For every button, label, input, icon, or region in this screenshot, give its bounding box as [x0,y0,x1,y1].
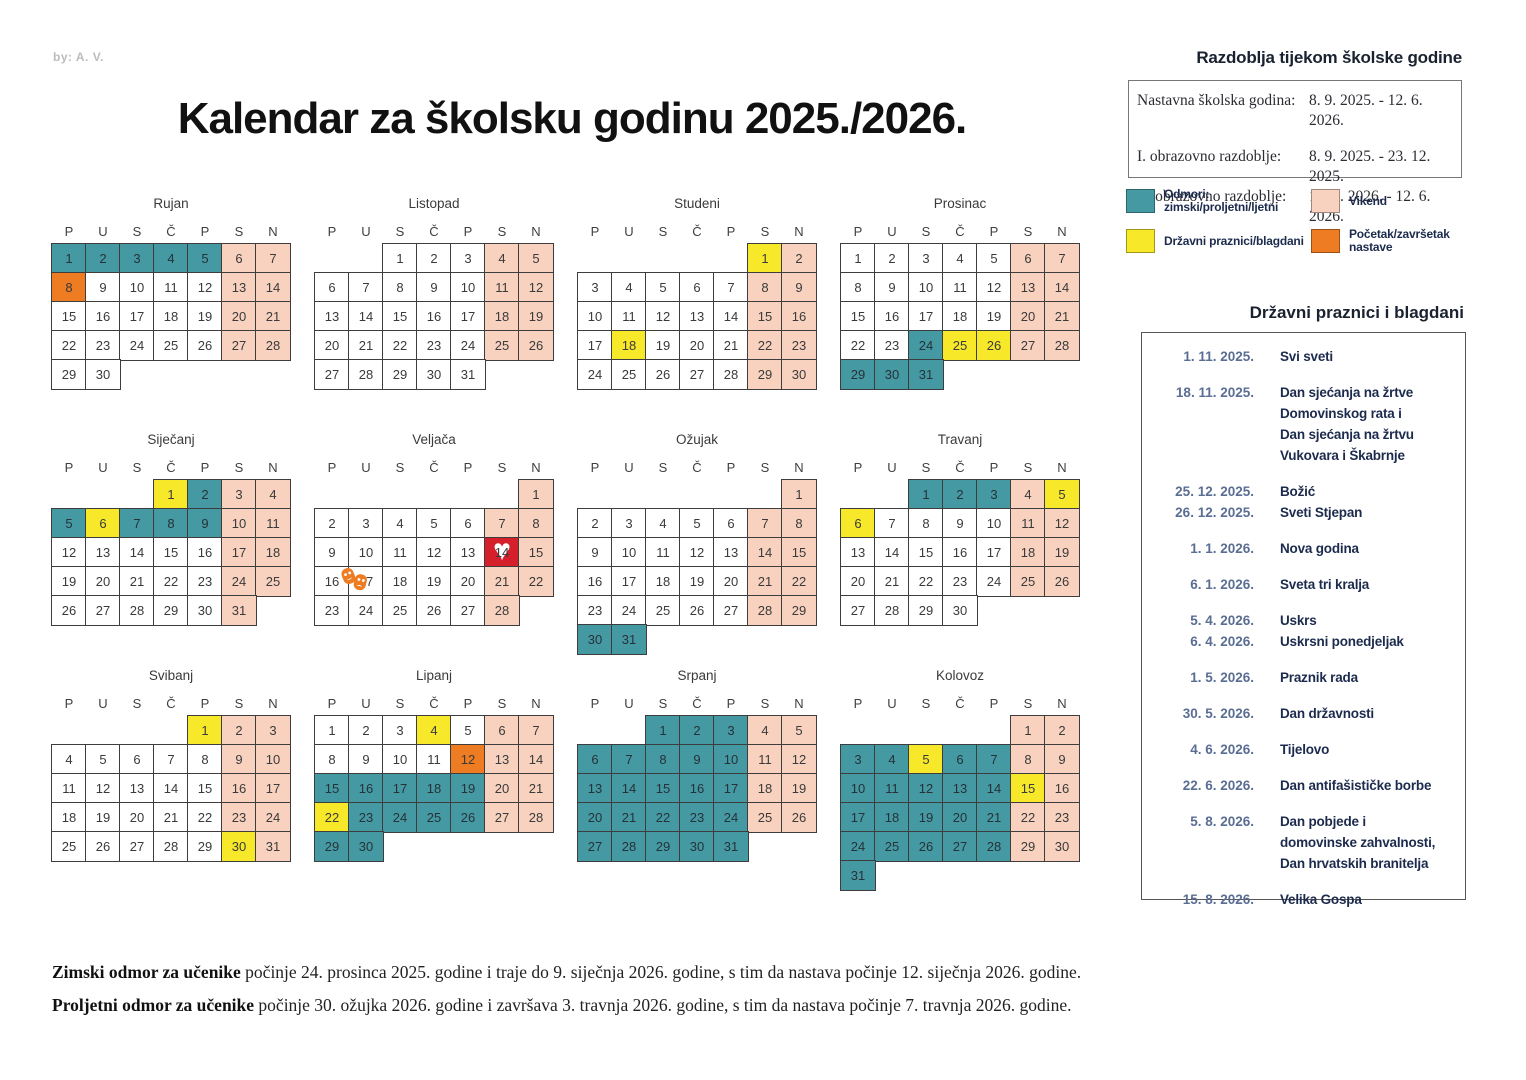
day-cell: 14 [256,273,290,302]
day-cell: 28 [748,596,782,625]
day-cell: 28 [349,360,383,389]
month-title: Veljača [315,432,553,454]
day-cell: 23 [417,331,451,360]
day-cell: 13 [578,774,612,803]
dow-label: U [349,454,383,480]
month-title: Listopad [315,196,553,218]
day-cell: 20 [451,567,485,596]
day-cell: 14 [875,538,909,567]
day-cell: 6 [120,745,154,774]
month-title: Kolovoz [841,668,1079,690]
day-cell: 29 [315,832,349,861]
day-cell: 5 [417,509,451,538]
day-cell: 19 [680,567,714,596]
day-cell: 4 [748,716,782,745]
month-title: Rujan [52,196,290,218]
dow-label: Č [943,454,977,480]
day-cell: 19 [52,567,86,596]
day-cell: 1 [841,244,875,273]
day-cell: 1 [315,716,349,745]
day-cell: 25 [417,803,451,832]
dow-label: N [256,218,290,244]
day-cell: 16 [417,302,451,331]
day-cell: 13 [485,745,519,774]
dow-label: S [1011,218,1045,244]
blank-cell [52,716,86,745]
day-cell: 28 [977,832,1011,861]
holiday-item: 5. 4. 2026.Uskrs [1142,610,1465,631]
day-cell: 18 [1011,538,1045,567]
month-days: 1234567891011121314151617181920212223242… [578,244,816,389]
holidays-box: 1. 11. 2025.Svi sveti18. 11. 2025.Dan sj… [1141,332,1466,900]
day-cell: 27 [680,360,714,389]
legend-label-break: Odmori: zimski/proljetni/ljetni [1164,188,1278,214]
dow-row: PUSČPSN [578,690,816,716]
day-cell: 30 [349,832,383,861]
day-cell: 21 [714,331,748,360]
day-cell: 28 [612,832,646,861]
month-days: 1234567891011121314151617181920212223242… [52,480,290,625]
spring-break-note-text: počinje 30. ožujka 2026. godine i završa… [254,995,1071,1015]
day-cell: 26 [909,832,943,861]
dow-label: S [646,690,680,716]
day-cell: 6 [86,509,120,538]
day-cell: 5 [86,745,120,774]
day-cell: 3 [909,244,943,273]
page-title: Kalendar za školsku godinu 2025./2026. [52,94,1092,144]
holiday-date: 1. 1. 2026. [1142,538,1254,559]
day-cell: 3 [349,509,383,538]
day-cell: 31 [222,596,256,625]
dow-row: PUSČPSN [52,454,290,480]
day-cell: 6 [680,273,714,302]
blank-cell [120,716,154,745]
day-cell: 19 [519,302,553,331]
month-rujan: RujanPUSČPSN1234567891011121314151617181… [52,196,290,389]
day-cell: 19 [909,803,943,832]
day-cell: 9 [222,745,256,774]
dow-label: S [748,454,782,480]
day-cell: 4 [943,244,977,273]
dow-label: Č [154,454,188,480]
period-row: Nastavna školska godina: 8. 9. 2025. - 1… [1137,91,1453,131]
legend-item-weekend: Vikend [1311,188,1462,214]
dow-label: S [120,218,154,244]
day-cell: 17 [222,538,256,567]
holiday-item: 1. 5. 2026.Praznik rada [1142,667,1465,688]
day-cell: 24 [120,331,154,360]
day-cell: 26 [188,331,222,360]
day-cell: 23 [188,567,222,596]
day-cell: 22 [1011,803,1045,832]
day-cell: 15 [909,538,943,567]
legend-label-startend: Početak/završetak nastave [1349,228,1462,254]
day-cell: 5 [782,716,816,745]
day-cell: 13 [841,538,875,567]
holiday-name: Dan pobjede i domovinske zahvalnosti, Da… [1280,811,1435,874]
day-cell: 9 [349,745,383,774]
holiday-name: Dan sjećanja na žrtve Domovinskog rata i… [1280,382,1414,466]
blank-cell [86,480,120,509]
day-cell: 29 [154,596,188,625]
day-cell: 18 [875,803,909,832]
month-lipanj: LipanjPUSČPSN123456789101112131415161718… [315,668,553,861]
day-cell: 7 [1045,244,1079,273]
blank-cell [646,480,680,509]
month-travanj: TravanjPUSČPSN12345678910111213141516171… [841,432,1079,625]
day-cell: 25 [748,803,782,832]
day-cell: 18 [383,567,417,596]
month-days: 1234567891011121314151617181920212223242… [841,480,1079,625]
day-cell: 5 [977,244,1011,273]
dow-row: PUSČPSN [315,690,553,716]
day-cell: 20 [1011,302,1045,331]
blank-cell [578,480,612,509]
day-cell: 25 [646,596,680,625]
holiday-name: Dan antifašističke borbe [1280,775,1431,796]
day-cell: 10 [714,745,748,774]
day-cell: 24 [349,596,383,625]
dow-label: U [612,218,646,244]
day-cell: 27 [578,832,612,861]
day-cell: 26 [52,596,86,625]
day-cell: 23 [1045,803,1079,832]
day-cell: 10 [612,538,646,567]
day-cell: 8 [1011,745,1045,774]
day-cell: 3 [578,273,612,302]
day-cell: 20 [841,567,875,596]
day-cell: 2 [222,716,256,745]
period-value: 8. 9. 2025. - 23. 12. 2025. [1309,147,1453,187]
day-cell: 29 [646,832,680,861]
day-cell: 22 [646,803,680,832]
dow-label: S [383,690,417,716]
day-cell: 12 [646,302,680,331]
day-cell: 14 [1045,273,1079,302]
dow-row: PUSČPSN [315,218,553,244]
day-cell: 30 [1045,832,1079,861]
dow-label: S [120,454,154,480]
day-cell: 22 [782,567,816,596]
winter-break-note-text: počinje 24. prosinca 2025. godine i traj… [241,962,1081,982]
day-cell: 16 [349,774,383,803]
day-cell: 29 [52,360,86,389]
day-cell: 30 [875,360,909,389]
day-cell: 3 [977,480,1011,509]
dow-label: P [52,454,86,480]
day-cell: 10 [578,302,612,331]
dow-label: P [451,454,485,480]
day-cell: 15 [52,302,86,331]
blank-cell [417,480,451,509]
day-cell: 19 [646,331,680,360]
dow-label: N [782,218,816,244]
day-cell: 20 [315,331,349,360]
day-cell: 31 [841,861,875,890]
day-cell: 8 [383,273,417,302]
day-cell: 17 [578,331,612,360]
blank-cell [451,480,485,509]
blank-cell [578,716,612,745]
dow-label: Č [417,218,451,244]
blank-cell [646,244,680,273]
day-cell: 30 [943,596,977,625]
day-cell: 30 [222,832,256,861]
day-cell: 7 [875,509,909,538]
holidays-heading: Državni praznici i blagdani [1141,303,1466,323]
dow-label: N [782,454,816,480]
holiday-name: Sveti Stjepan [1280,502,1362,523]
holiday-date: 1. 5. 2026. [1142,667,1254,688]
dow-label: U [875,690,909,716]
day-cell: 16 [86,302,120,331]
month-days: 1234567891011121314151617181920212223242… [315,716,553,861]
day-cell: 10 [841,774,875,803]
day-cell: 18 [612,331,646,360]
day-cell: 12 [909,774,943,803]
day-cell: 23 [578,596,612,625]
dow-label: N [519,218,553,244]
day-cell: 6 [578,745,612,774]
day-cell: 11 [943,273,977,302]
day-cell: 18 [154,302,188,331]
holiday-name: Nova godina [1280,538,1359,559]
holiday-swatch [1126,229,1155,253]
holiday-item: 1. 11. 2025.Svi sveti [1142,346,1465,367]
day-cell: 22 [841,331,875,360]
month-days: 1234567891011121314151617181920212223242… [841,716,1079,890]
month-siječanj: SiječanjPUSČPSN1234567891011121314151617… [52,432,290,625]
day-cell: 7 [154,745,188,774]
day-cell: 4 [52,745,86,774]
dow-label: U [612,454,646,480]
day-cell: 26 [519,331,553,360]
day-cell: 3 [222,480,256,509]
month-title: Travanj [841,432,1079,454]
day-cell: 19 [86,803,120,832]
day-cell: 26 [977,331,1011,360]
dow-label: N [782,690,816,716]
day-cell: 1 [909,480,943,509]
dow-row: PUSČPSN [52,690,290,716]
day-cell: 1 [52,244,86,273]
day-cell: 20 [485,774,519,803]
dow-label: P [451,218,485,244]
day-cell: 9 [943,509,977,538]
day-cell: 13 [680,302,714,331]
day-cell: 13 [120,774,154,803]
month-svibanj: SvibanjPUSČPSN12345678910111213141516171… [52,668,290,861]
periods-heading: Razdoblja tijekom školske godine [1128,48,1462,68]
day-cell: 26 [680,596,714,625]
day-cell: 22 [748,331,782,360]
day-cell: 28 [875,596,909,625]
day-cell: 16 [578,567,612,596]
day-cell: 7 [256,244,290,273]
legend-item-startend: Početak/završetak nastave [1311,228,1462,254]
day-cell: 19 [451,774,485,803]
day-cell: 15 [383,302,417,331]
holiday-date: 15. 8. 2026. [1142,889,1254,910]
dow-label: S [646,454,680,480]
month-title: Studeni [578,196,816,218]
day-cell: 17 [349,567,383,596]
holiday-item: 30. 5. 2026.Dan državnosti [1142,703,1465,724]
day-cell: 18 [256,538,290,567]
period-label: Nastavna školska godina: [1137,91,1309,131]
day-cell: 20 [680,331,714,360]
day-cell: 18 [417,774,451,803]
month-days: 1234567891011121314151617181920212223242… [315,244,553,389]
dow-label: Č [417,690,451,716]
blank-cell [714,244,748,273]
day-cell: 14 [714,302,748,331]
blank-cell [383,480,417,509]
day-cell: 21 [485,567,519,596]
dow-label: U [875,454,909,480]
day-cell: 8 [782,509,816,538]
day-cell: 11 [646,538,680,567]
holiday-item: 6. 4. 2026.Uskrsni ponedjeljak [1142,631,1465,652]
day-cell: 20 [943,803,977,832]
legend-label-holiday: Državni praznici/blagdani [1164,235,1304,248]
day-cell: 17 [977,538,1011,567]
day-cell: 21 [977,803,1011,832]
day-cell: 27 [451,596,485,625]
day-cell: 29 [909,596,943,625]
day-cell: 7 [714,273,748,302]
day-cell: 30 [86,360,120,389]
author-credit: by: A. V. [53,50,104,64]
day-cell: 15 [841,302,875,331]
day-cell: 25 [485,331,519,360]
day-cell: 10 [222,509,256,538]
day-cell: 2 [1045,716,1079,745]
day-cell: 26 [646,360,680,389]
month-days: 1234567891011121314151617181920212223242… [578,716,816,861]
day-cell: 14 [349,302,383,331]
dow-row: PUSČPSN [841,690,1079,716]
spring-break-note: Proljetni odmor za učenike počinje 30. o… [52,995,1332,1016]
dow-label: P [977,454,1011,480]
day-cell: 6 [315,273,349,302]
legend-item-holiday: Državni praznici/blagdani [1126,228,1311,254]
holiday-date: 25. 12. 2025. [1142,481,1254,502]
holiday-item: 26. 12. 2025.Sveti Stjepan [1142,502,1465,523]
day-cell: 2 [188,480,222,509]
day-cell: 13 [943,774,977,803]
blank-cell [120,480,154,509]
spring-break-note-bold: Proljetni odmor za učenike [52,995,254,1015]
day-cell: 24 [909,331,943,360]
day-cell: 10 [977,509,1011,538]
day-cell: 11 [383,538,417,567]
day-cell: 9 [680,745,714,774]
day-cell: 15 [315,774,349,803]
blank-cell [52,480,86,509]
day-cell: 16 [1045,774,1079,803]
day-cell: 9 [86,273,120,302]
blank-cell [612,244,646,273]
day-cell: 9 [1045,745,1079,774]
day-cell: 15 [1011,774,1045,803]
day-cell: 24 [222,567,256,596]
day-cell: 11 [1011,509,1045,538]
blank-cell [680,480,714,509]
day-cell: 25 [612,360,646,389]
blank-cell [875,480,909,509]
day-cell: 9 [417,273,451,302]
dow-label: N [519,454,553,480]
day-cell: 17 [909,302,943,331]
day-cell: 27 [714,596,748,625]
day-cell: 9 [578,538,612,567]
dow-label: N [1045,454,1079,480]
holiday-name: Sveta tri kralja [1280,574,1369,595]
day-cell: 8 [154,509,188,538]
day-cell: 25 [875,832,909,861]
month-title: Svibanj [52,668,290,690]
legend: Odmori: zimski/proljetni/ljetniVikendDrž… [1126,188,1462,254]
day-cell: 1 [782,480,816,509]
day-cell: 7 [519,716,553,745]
dow-label: S [485,454,519,480]
day-cell: 29 [1011,832,1045,861]
day-cell: 13 [315,302,349,331]
dow-label: P [315,218,349,244]
day-cell: 15 [188,774,222,803]
day-cell: 11 [154,273,188,302]
holiday-item: 1. 1. 2026.Nova godina [1142,538,1465,559]
holiday-item: 25. 12. 2025.Božić [1142,481,1465,502]
day-cell: 28 [485,596,519,625]
day-cell: 19 [188,302,222,331]
holiday-date: 5. 8. 2026. [1142,811,1254,874]
day-cell: 16 [875,302,909,331]
dow-label: P [714,454,748,480]
day-cell: 14 [154,774,188,803]
day-cell: 2 [578,509,612,538]
day-cell: 31 [714,832,748,861]
day-cell: 6 [714,509,748,538]
day-cell: 7 [977,745,1011,774]
day-cell: 18 [943,302,977,331]
day-cell: 11 [485,273,519,302]
day-cell: 13 [86,538,120,567]
dow-label: S [1011,690,1045,716]
dow-row: PUSČPSN [841,454,1079,480]
day-cell: 13 [1011,273,1045,302]
periods-box: Nastavna školska godina: 8. 9. 2025. - 1… [1128,80,1462,178]
day-cell: 18 [748,774,782,803]
day-cell: 17 [714,774,748,803]
day-cell: 23 [875,331,909,360]
blank-cell [748,480,782,509]
dow-label: U [86,454,120,480]
month-kolovoz: KolovozPUSČPSN12345678910111213141516171… [841,668,1079,890]
day-cell: 12 [519,273,553,302]
holiday-name: Dan državnosti [1280,703,1374,724]
day-cell: 5 [52,509,86,538]
day-cell: 22 [188,803,222,832]
holiday-item: 22. 6. 2026.Dan antifašističke borbe [1142,775,1465,796]
dow-label: P [977,690,1011,716]
day-cell: 12 [680,538,714,567]
month-title: Srpanj [578,668,816,690]
blank-cell [349,244,383,273]
day-cell: 28 [120,596,154,625]
day-cell: 13 [222,273,256,302]
